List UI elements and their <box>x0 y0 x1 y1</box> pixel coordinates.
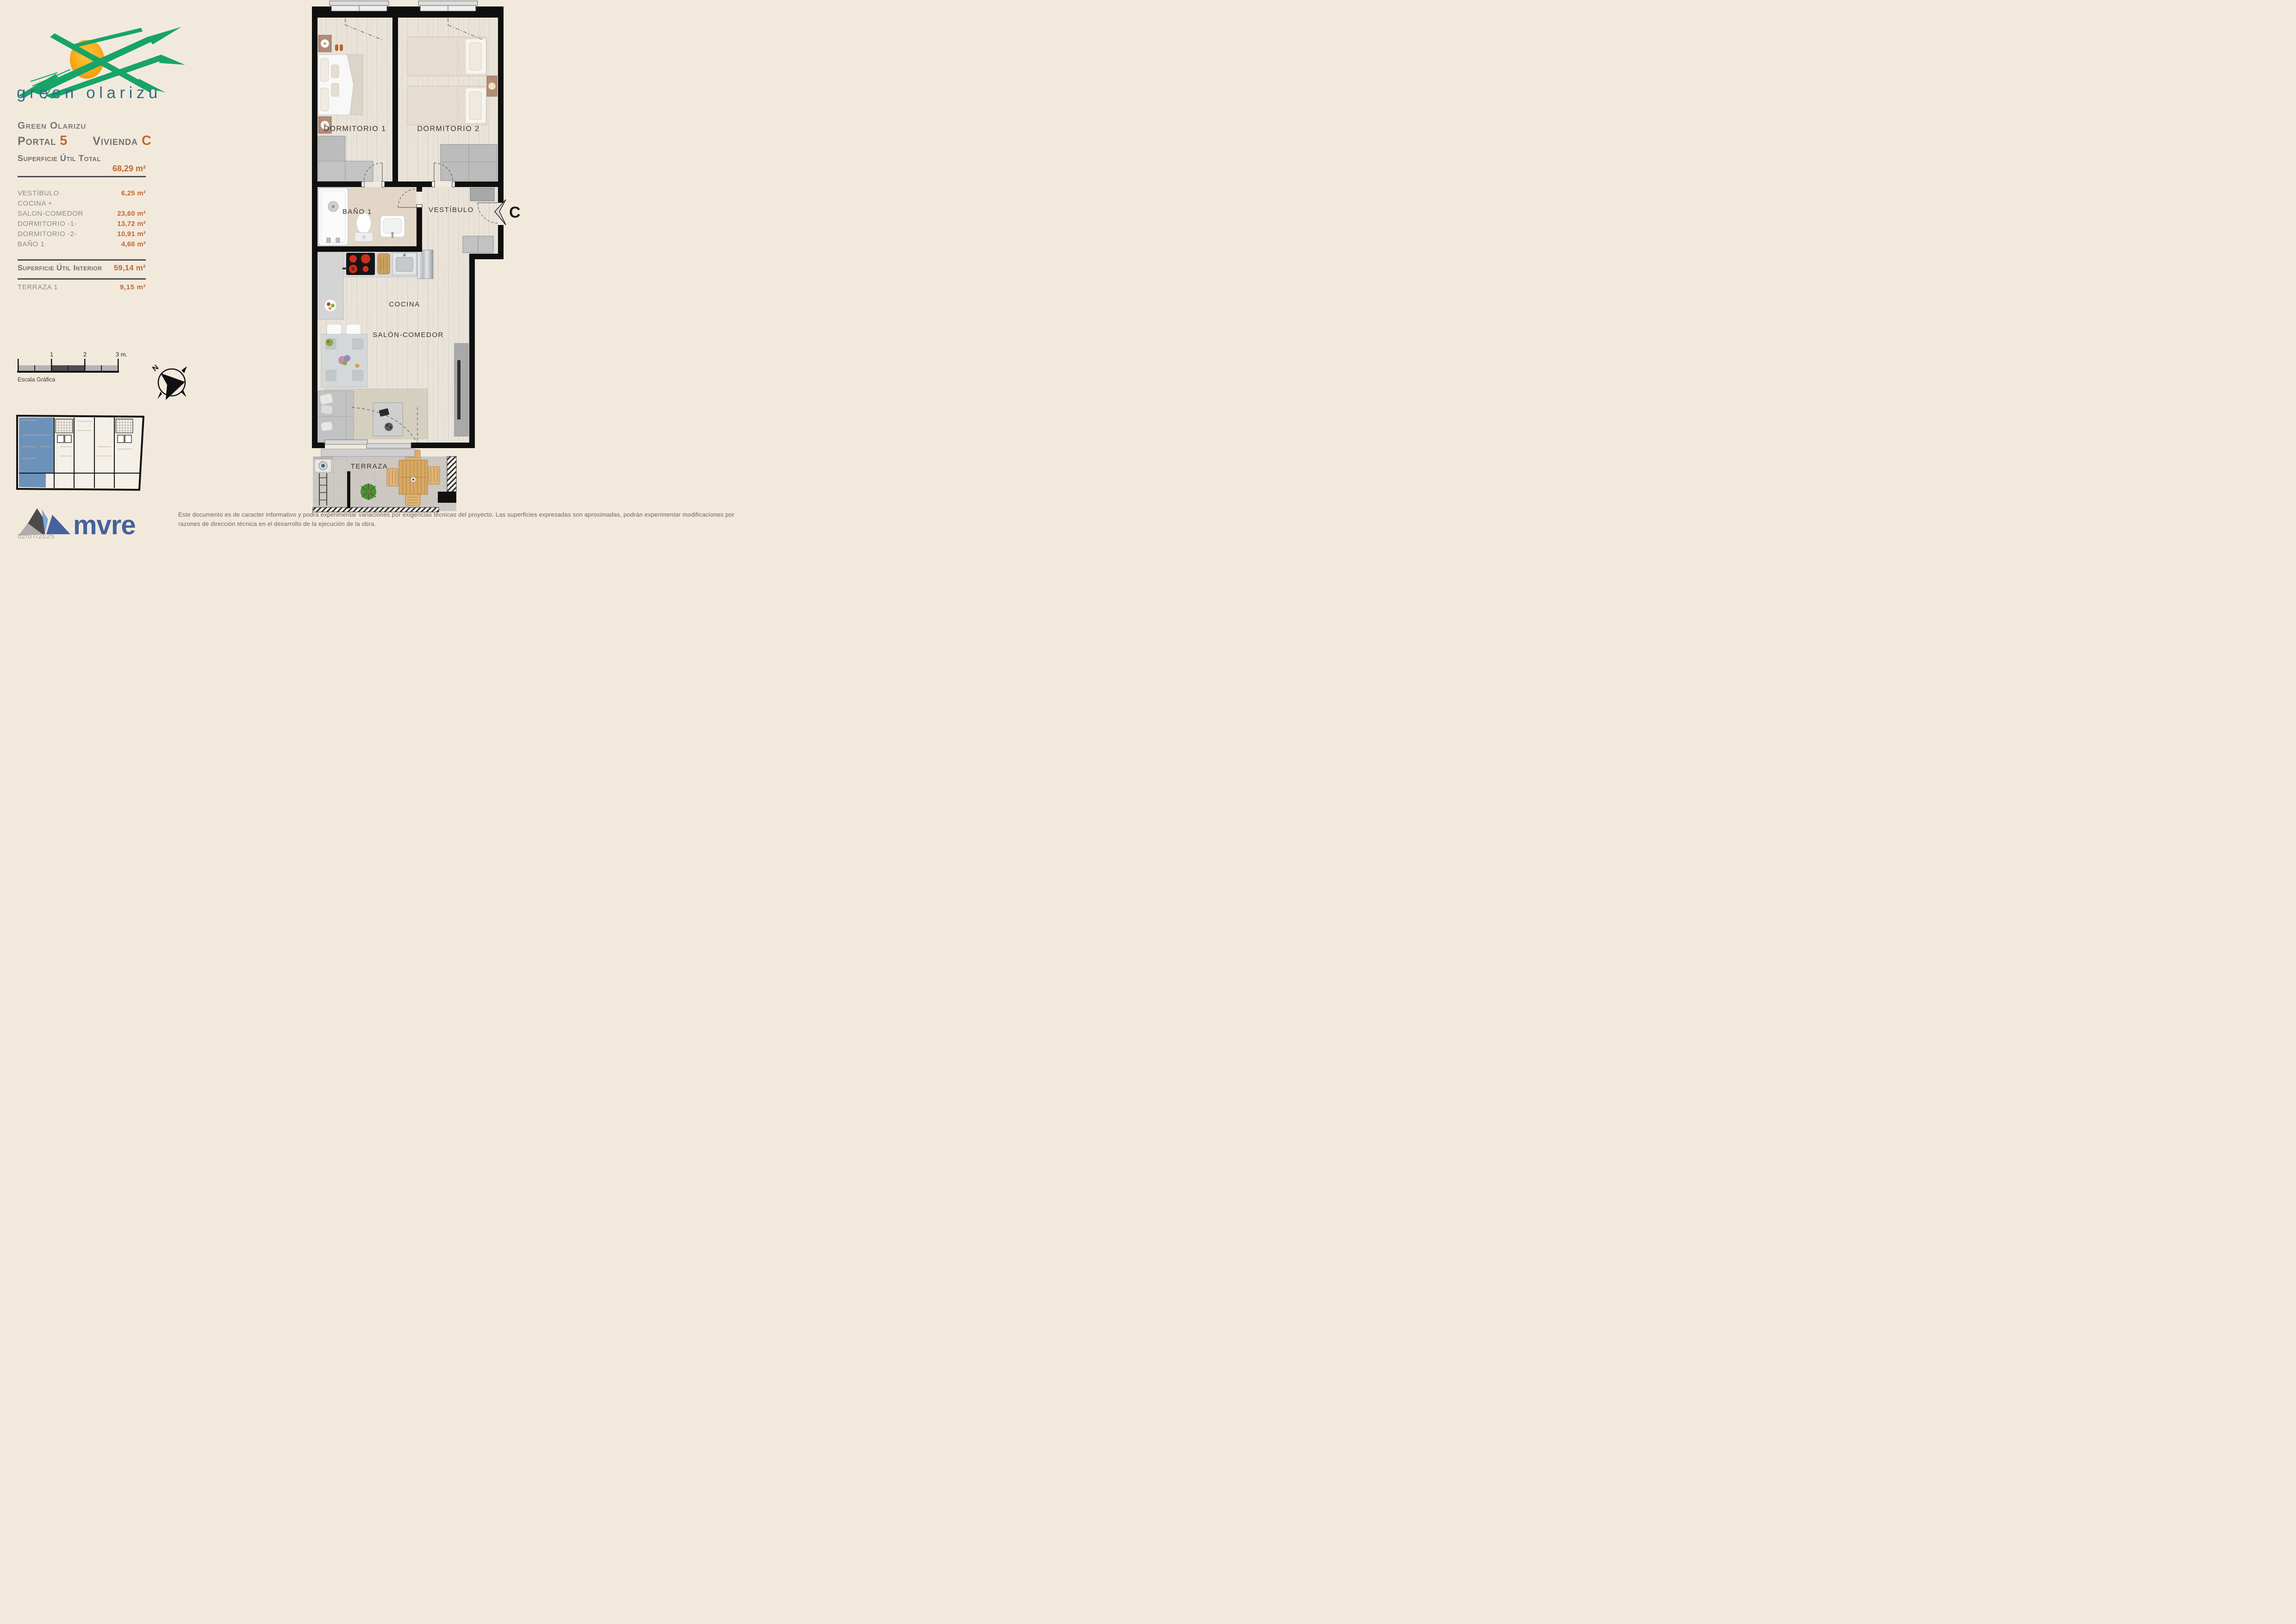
entrance-letter: C <box>509 204 521 221</box>
row-value: 13,72 m² <box>117 219 146 229</box>
label-terrace: TERRAZA <box>351 462 388 470</box>
row-label: BAÑO 1 <box>18 240 45 250</box>
portal-label: Portal <box>18 135 56 148</box>
row-label: SALON-COMEDOR <box>18 209 83 219</box>
table-row: BAÑO 1 4,66 m² <box>18 240 146 250</box>
terrace-divider <box>347 471 350 508</box>
divider <box>18 259 146 261</box>
table-row: COCINA + <box>18 199 146 209</box>
surface-interior-row: Superficie Útil Interior 59,14 m² <box>18 264 146 273</box>
key-plan <box>17 416 143 490</box>
laundry-shelf <box>314 456 333 459</box>
table-row: DORMITORIO -2- 10,91 m² <box>18 230 146 239</box>
document-date: 02/07/2025 <box>18 532 55 540</box>
tv-sideboard <box>454 344 468 436</box>
portal-number: 5 <box>60 133 68 148</box>
entrance-marker: C <box>495 200 521 225</box>
shower-tray <box>318 188 348 245</box>
brochure-page: green olarizu <box>0 0 765 541</box>
label-bath: BAÑO 1 <box>342 208 372 216</box>
window-dorm1 <box>330 1 389 11</box>
brand-mountain-icon <box>19 508 70 536</box>
unit-label: Vivienda <box>93 135 138 148</box>
disclaimer-line-2: razones de dirección técnica en el desar… <box>178 520 757 527</box>
interior-label: Superficie Útil Interior <box>18 264 102 273</box>
fridge <box>417 250 433 279</box>
unit-letter: C <box>142 133 152 148</box>
interior-value: 59,14 m² <box>114 264 146 273</box>
terrace-corner-wall <box>438 492 456 503</box>
table-row: DORMITORIO -1- 13,72 m² <box>18 219 146 229</box>
scale-tick-3: 3 m. <box>116 351 127 358</box>
window-dorm2 <box>418 1 478 11</box>
label-hall: VESTÍBULO <box>429 206 474 214</box>
coffee-table <box>373 403 403 436</box>
table-row: VESTÍBULO 6,25 m² <box>18 189 146 199</box>
terrace-railing-right <box>447 456 456 492</box>
surface-table: VESTÍBULO 6,25 m² COCINA + SALON-COMEDOR… <box>18 189 146 250</box>
label-dorm2: DORMITORIO 2 <box>417 125 479 133</box>
disclaimer-line-1: Este documento es de caracter informativ… <box>178 511 757 518</box>
scale-bar: 1 2 3 m. Escala Gráfica <box>17 351 127 383</box>
slippers <box>335 44 338 51</box>
compass: N <box>151 363 187 400</box>
row-label: VESTÍBULO <box>18 189 59 199</box>
logo-wordmark: green olarizu <box>17 84 162 102</box>
row-label: COCINA + <box>18 199 52 209</box>
project-title: Green Olarizu <box>18 120 86 131</box>
divider <box>18 278 146 280</box>
row-value: 6,25 m² <box>121 189 146 199</box>
label-dorm1: DORMITORIO 1 <box>324 125 386 133</box>
surface-total-value: 68,29 m² <box>18 164 146 174</box>
compass-north-label: N <box>151 363 160 373</box>
tv <box>457 360 460 419</box>
label-living: SALÓN-COMEDOR <box>373 331 444 339</box>
table-row: SALON-COMEDOR 23,60 m² <box>18 209 146 219</box>
wardrobe <box>318 161 373 181</box>
brand-wordmark: mvre <box>73 510 136 540</box>
row-value: 10,91 m² <box>117 230 146 239</box>
scale-tick-1: 1 <box>50 351 53 358</box>
terrace-value: 9,15 m² <box>120 283 146 291</box>
scale-tick-2: 2 <box>83 351 87 358</box>
terrace-label: TERRAZA 1 <box>18 283 58 291</box>
divider <box>18 176 146 177</box>
surface-terrace-row: TERRAZA 1 9,15 m² <box>18 283 146 291</box>
floor-plan: C DORMITORIO 1 DORMITORIO 2 BAÑO 1 VESTÍ… <box>312 1 521 512</box>
row-value: 23,60 m² <box>117 209 146 219</box>
portal-unit-line: Portal 5 Vivienda C <box>18 133 152 149</box>
row-value: 4,66 m² <box>121 240 146 250</box>
surface-total-label: Superficie Útil Total <box>18 154 101 163</box>
row-label: DORMITORIO -1- <box>18 219 77 229</box>
developer-logo: green olarizu <box>17 27 185 102</box>
label-kitchen: COCINA <box>389 300 420 308</box>
row-label: DORMITORIO -2- <box>18 230 77 239</box>
scale-caption: Escala Gráfica <box>18 376 55 383</box>
